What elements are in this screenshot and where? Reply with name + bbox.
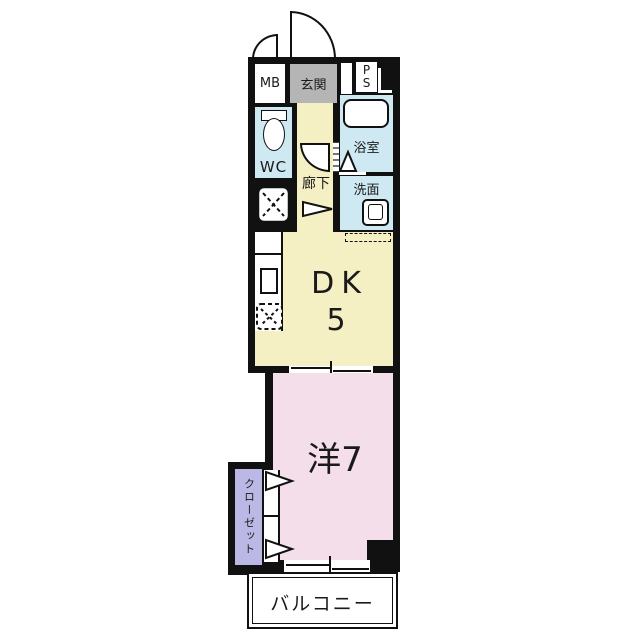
pipe-space-l-icon (378, 68, 392, 93)
pipe-space-label-s: S (356, 77, 377, 90)
dk-counter-dashed-area (345, 233, 391, 242)
kitchen-sink-icon (260, 268, 278, 294)
meter-box-label: MB (260, 76, 280, 91)
washroom-label: 洗面 (340, 179, 393, 198)
closet-room: クローゼット (235, 469, 262, 565)
dk-size-label: 5 (288, 303, 384, 338)
balcony-label: バルコニー (249, 589, 396, 616)
closet-label: クローゼット (241, 478, 257, 556)
meter-box-room: MB (255, 64, 285, 103)
washbasin-icon (362, 199, 389, 226)
dk-window-pane-left (291, 367, 331, 369)
washroom-room: 洗面 (340, 176, 393, 230)
bathroom-sliding-door-gap (339, 172, 366, 175)
pipe-space-room: P S (356, 62, 377, 92)
balcony-window-pane-right (332, 568, 369, 570)
closet-door-strip (264, 470, 278, 562)
dk-label: DK (288, 266, 384, 301)
balcony-window-gap (284, 560, 370, 572)
wc-room: WC (255, 107, 292, 178)
balcony-area: バルコニー (247, 572, 398, 629)
washroom-sliding-door-icon (333, 142, 339, 172)
balcony-window-pane-left (286, 564, 330, 566)
entrance-side-niche (341, 63, 352, 94)
western-room-label: 洋7 (295, 432, 375, 481)
wc-label: WC (255, 158, 292, 176)
bathtub-icon (343, 99, 389, 128)
closet-door-edge (278, 470, 280, 562)
pipe-space-label-p: P (356, 64, 377, 77)
bathroom-room: 浴室 (340, 95, 393, 172)
hallway-label: 廊下 (297, 173, 335, 193)
entrance-label: 玄関 (300, 74, 326, 93)
toilet-bowl-icon (263, 118, 285, 151)
closet-door-divider (264, 515, 278, 517)
dk-label-group: DK 5 (288, 266, 384, 338)
kitchen-counter (255, 232, 283, 331)
dk-window-pane-right (333, 370, 371, 372)
western-room-corner-pillar (367, 540, 393, 560)
entrance-room: 玄関 (290, 64, 337, 103)
mb-door-arc-icon (252, 34, 278, 59)
kitchen-counter-divider (255, 253, 281, 255)
bathroom-label: 浴室 (340, 137, 393, 156)
floor-plan: MB 玄関 P S WC 浴室 洗面 廊下 DK 5 (0, 0, 640, 640)
washbasin-bowl-icon (368, 204, 383, 220)
entrance-door-arc-icon (290, 11, 336, 59)
